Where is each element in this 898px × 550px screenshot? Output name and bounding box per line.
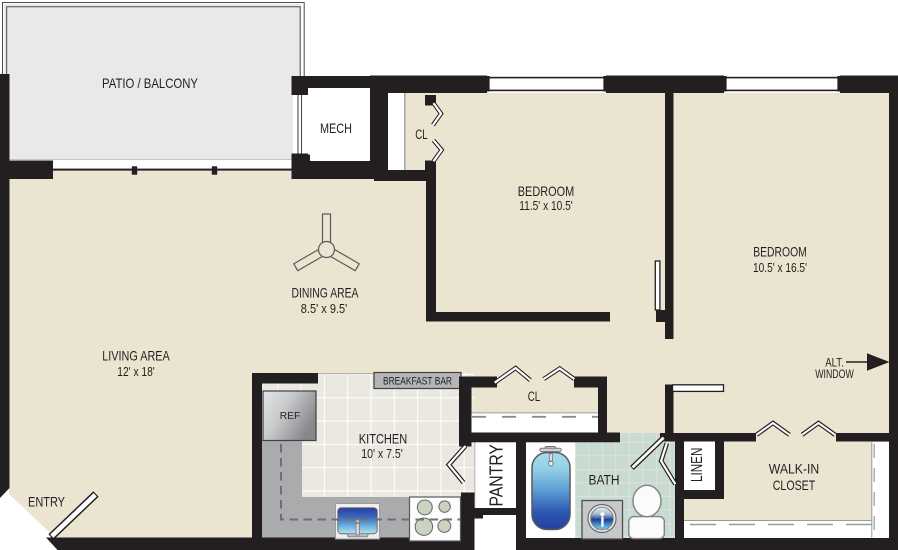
svg-text:CL: CL (415, 127, 428, 142)
svg-text:10' x 7.5': 10' x 7.5' (361, 446, 403, 461)
svg-text:REF: REF (280, 410, 301, 422)
svg-text:WALK-IN: WALK-IN (769, 461, 820, 477)
svg-text:8.5' x 9.5': 8.5' x 9.5' (301, 301, 348, 316)
svg-text:BEDROOM: BEDROOM (753, 244, 807, 260)
svg-text:CL: CL (528, 389, 541, 404)
svg-text:BEDROOM: BEDROOM (518, 183, 575, 199)
svg-text:11.5' x 10.5': 11.5' x 10.5' (519, 198, 573, 213)
svg-text:10.5' x 16.5': 10.5' x 16.5' (753, 260, 807, 275)
svg-text:12' x 18': 12' x 18' (117, 364, 155, 379)
svg-text:BREAKFAST BAR: BREAKFAST BAR (383, 375, 452, 387)
svg-text:CLOSET: CLOSET (773, 477, 816, 493)
svg-text:ENTRY: ENTRY (28, 495, 65, 510)
svg-text:PANTRY: PANTRY (487, 444, 507, 507)
svg-text:KITCHEN: KITCHEN (359, 431, 408, 447)
svg-text:LIVING AREA: LIVING AREA (102, 348, 170, 364)
svg-text:WINDOW: WINDOW (815, 367, 854, 381)
svg-text:PATIO / BALCONY: PATIO / BALCONY (102, 75, 199, 91)
svg-text:DINING AREA: DINING AREA (292, 285, 359, 301)
svg-text:BATH: BATH (589, 472, 620, 488)
svg-text:MECH: MECH (320, 120, 352, 136)
svg-text:LINEN: LINEN (689, 448, 706, 483)
